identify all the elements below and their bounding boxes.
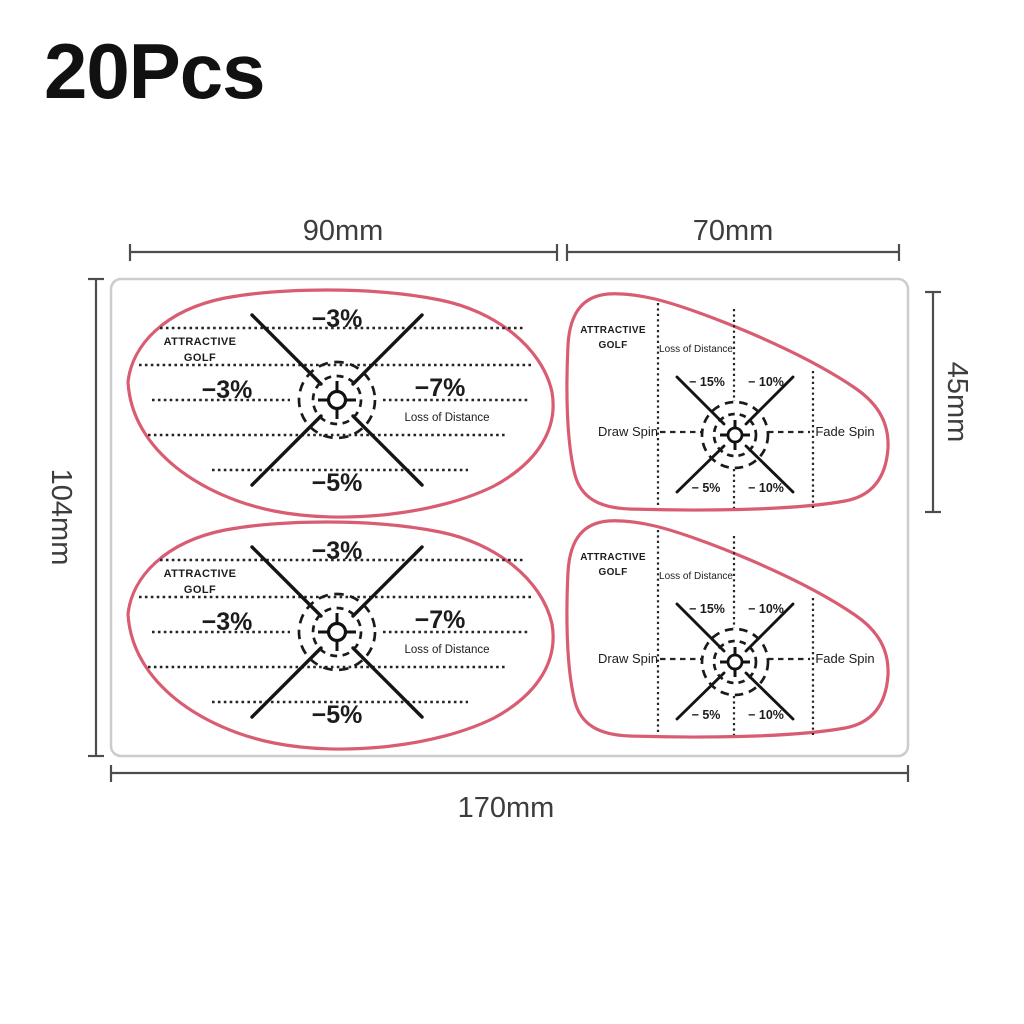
dimension-label: 45mm <box>941 362 973 443</box>
loss-bottom-right-label: − 10% <box>748 708 784 722</box>
dimension-bottom: 170mm <box>111 765 908 824</box>
brand-text: ATTRACTIVE <box>164 336 237 348</box>
loss-of-distance-label: Loss of Distance <box>404 412 489 424</box>
loss-of-distance-label: Loss of Distance <box>659 571 733 582</box>
dimension-label: 104mm <box>45 469 77 566</box>
dimension-label: 70mm <box>693 215 774 247</box>
brand-text: ATTRACTIVE <box>164 568 237 580</box>
loss-top-right-label: − 10% <box>748 602 784 616</box>
brand-text: ATTRACTIVE <box>580 325 646 336</box>
brand-text: GOLF <box>599 567 628 578</box>
loss-of-distance-label: Loss of Distance <box>659 344 733 355</box>
dimension-left: 104mm <box>45 279 104 756</box>
product-image: 20Pcs 90mm 70mm 104mm 45mm <box>0 0 1024 1024</box>
loss-bottom-label: −5% <box>312 469 363 497</box>
brand-text: GOLF <box>184 584 216 596</box>
loss-bottom-left-label: − 5% <box>692 481 721 495</box>
loss-bottom-label: −5% <box>312 701 363 729</box>
dimension-top-right: 70mm <box>567 215 899 261</box>
loss-right-label: −7% <box>415 374 466 402</box>
dimension-label: 170mm <box>458 792 555 824</box>
loss-of-distance-label: Loss of Distance <box>404 644 489 656</box>
fade-spin-label: Fade Spin <box>815 651 874 666</box>
brand-text: ATTRACTIVE <box>580 552 646 563</box>
dimension-top-left: 90mm <box>130 215 557 261</box>
brand-text: GOLF <box>599 340 628 351</box>
loss-top-left-label: − 15% <box>689 602 725 616</box>
loss-top-right-label: − 10% <box>748 375 784 389</box>
draw-spin-label: Draw Spin <box>598 424 658 439</box>
loss-left-label: −3% <box>202 608 253 636</box>
loss-top-label: −3% <box>312 537 363 565</box>
loss-left-label: −3% <box>202 376 253 404</box>
dimension-diagram: 90mm 70mm 104mm 45mm 170mm <box>0 0 1024 1024</box>
loss-top-left-label: − 15% <box>689 375 725 389</box>
brand-text: GOLF <box>184 352 216 364</box>
draw-spin-label: Draw Spin <box>598 651 658 666</box>
loss-top-label: −3% <box>312 305 363 333</box>
fade-spin-label: Fade Spin <box>815 424 874 439</box>
loss-bottom-left-label: − 5% <box>692 708 721 722</box>
loss-right-label: −7% <box>415 606 466 634</box>
loss-bottom-right-label: − 10% <box>748 481 784 495</box>
dimension-right: 45mm <box>925 292 973 512</box>
dimension-label: 90mm <box>303 215 384 247</box>
